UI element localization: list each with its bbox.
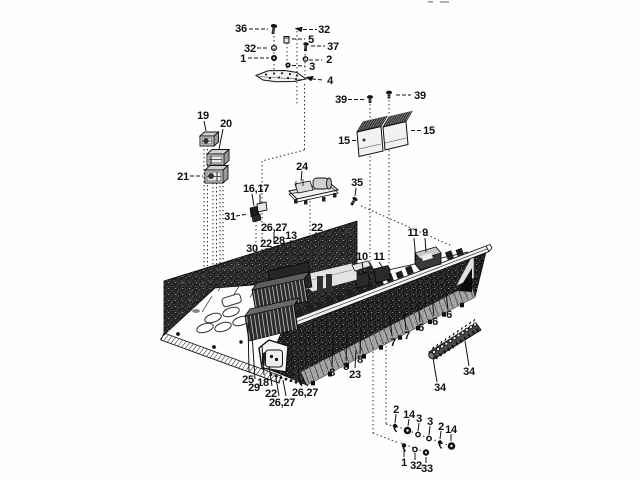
svg-text:9: 9 <box>422 227 428 239</box>
svg-text:34: 34 <box>434 382 447 394</box>
svg-text:11: 11 <box>373 251 384 263</box>
svg-text:16,17: 16,17 <box>243 183 269 195</box>
svg-text:3: 3 <box>427 416 433 428</box>
svg-text:8: 8 <box>329 367 335 379</box>
svg-text:6: 6 <box>418 322 424 334</box>
svg-text:8: 8 <box>357 354 363 366</box>
svg-text:39: 39 <box>414 90 426 102</box>
svg-text:22: 22 <box>260 238 272 250</box>
svg-text:2: 2 <box>326 54 332 66</box>
svg-text:20: 20 <box>220 118 232 130</box>
svg-text:6: 6 <box>446 309 452 321</box>
svg-text:10: 10 <box>356 251 368 263</box>
svg-text:11: 11 <box>407 227 418 239</box>
svg-text:30: 30 <box>246 243 258 255</box>
svg-text:31: 31 <box>224 211 236 223</box>
svg-text:32: 32 <box>244 43 256 55</box>
svg-text:28: 28 <box>273 235 285 247</box>
svg-text:26,27: 26,27 <box>261 222 287 234</box>
svg-text:22: 22 <box>311 222 323 234</box>
svg-text:32: 32 <box>318 24 330 36</box>
svg-text:7: 7 <box>404 330 410 342</box>
svg-text:26,27: 26,27 <box>292 387 318 399</box>
svg-text:8: 8 <box>343 361 349 373</box>
svg-text:14: 14 <box>403 409 416 421</box>
svg-text:2: 2 <box>393 404 399 416</box>
svg-text:34: 34 <box>463 366 476 378</box>
svg-text:2: 2 <box>438 421 444 433</box>
svg-text:3: 3 <box>416 413 422 425</box>
svg-text:21: 21 <box>177 171 189 183</box>
svg-text:24: 24 <box>296 161 309 173</box>
svg-text:4: 4 <box>327 75 334 87</box>
svg-text:15: 15 <box>423 125 435 137</box>
svg-text:5: 5 <box>308 34 314 46</box>
svg-text:35: 35 <box>351 177 363 189</box>
svg-text:39: 39 <box>335 94 347 106</box>
svg-text:36: 36 <box>235 23 247 35</box>
svg-text:37: 37 <box>327 41 339 53</box>
svg-text:3: 3 <box>309 61 315 73</box>
svg-text:1: 1 <box>401 457 407 469</box>
svg-text:6: 6 <box>432 316 438 328</box>
svg-text:33: 33 <box>421 463 433 475</box>
svg-text:23: 23 <box>349 369 361 381</box>
svg-text:19: 19 <box>197 110 209 122</box>
svg-text:7: 7 <box>390 337 396 349</box>
svg-text:15: 15 <box>338 135 350 147</box>
svg-text:13: 13 <box>285 230 297 242</box>
svg-text:1: 1 <box>240 53 246 65</box>
svg-text:14: 14 <box>445 424 458 436</box>
